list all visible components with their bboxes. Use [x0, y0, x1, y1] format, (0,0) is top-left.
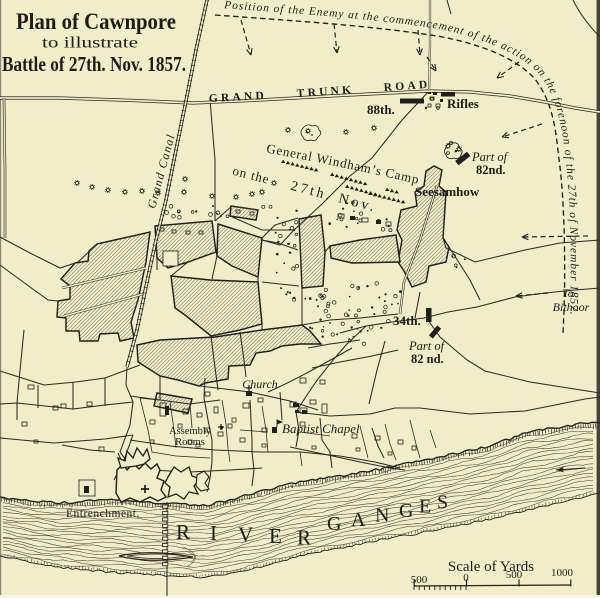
- svg-text:I: I: [210, 521, 217, 545]
- svg-text:Rooms: Rooms: [175, 437, 205, 448]
- svg-text:Assembly: Assembly: [169, 426, 212, 437]
- svg-text:Part of: Part of: [408, 339, 446, 353]
- svg-text:To: To: [562, 286, 574, 300]
- svg-text:0: 0: [463, 572, 469, 584]
- svg-text:E: E: [419, 496, 431, 518]
- svg-text:Church: Church: [242, 377, 278, 391]
- svg-text:Plan of Cawnpore: Plan of Cawnpore: [16, 9, 176, 34]
- svg-text:Seesamhow: Seesamhow: [415, 184, 480, 199]
- svg-text:R: R: [297, 526, 311, 550]
- svg-text:500: 500: [411, 574, 428, 586]
- svg-text:Part of: Part of: [471, 150, 509, 164]
- svg-text:S: S: [437, 492, 448, 514]
- svg-text:34th.: 34th.: [393, 313, 421, 328]
- svg-text:Bithoor: Bithoor: [553, 300, 590, 314]
- svg-text:R: R: [176, 520, 190, 544]
- svg-text:V: V: [238, 523, 253, 547]
- svg-text:Baptist Chapel: Baptist Chapel: [282, 421, 360, 436]
- svg-text:G: G: [327, 513, 341, 535]
- svg-text:82nd.: 82nd.: [476, 163, 506, 177]
- svg-text:Rifles: Rifles: [447, 96, 479, 111]
- svg-text:N: N: [375, 505, 389, 527]
- svg-text:500: 500: [506, 569, 523, 581]
- svg-text:Battle of 27th. Nov. 1857.: Battle of 27th. Nov. 1857.: [2, 52, 186, 76]
- svg-text:1000: 1000: [551, 567, 574, 579]
- svg-text:to illustrate: to illustrate: [42, 35, 138, 52]
- svg-text:Entrenchment.: Entrenchment.: [66, 508, 140, 520]
- svg-text:82 nd.: 82 nd.: [411, 352, 444, 366]
- svg-text:E: E: [269, 524, 282, 548]
- svg-text:G: G: [399, 500, 413, 522]
- svg-text:88th.: 88th.: [367, 102, 395, 117]
- svg-text:A: A: [351, 509, 366, 531]
